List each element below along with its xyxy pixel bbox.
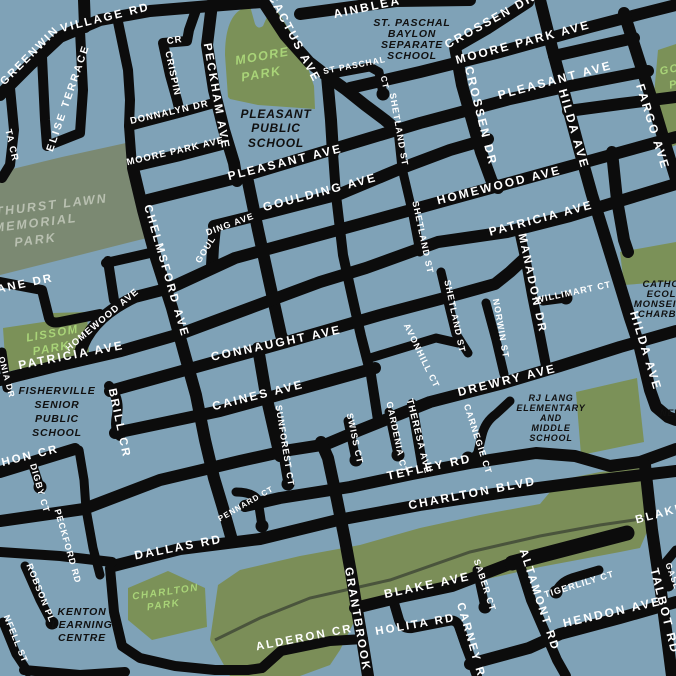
svg-text:CHARBON: CHARBON bbox=[638, 309, 676, 320]
svg-text:CENTRE: CENTRE bbox=[58, 632, 106, 644]
svg-text:SCHOOL: SCHOOL bbox=[32, 427, 82, 439]
svg-text:SCHOOL: SCHOOL bbox=[529, 433, 572, 443]
svg-text:PUBLIC: PUBLIC bbox=[35, 413, 79, 425]
svg-text:NEWTONB: NEWTONB bbox=[660, 408, 676, 418]
svg-text:LEARNING: LEARNING bbox=[51, 619, 112, 631]
svg-text:MIDDLE: MIDDLE bbox=[531, 423, 570, 433]
svg-text:CR: CR bbox=[166, 34, 183, 47]
svg-text:PLEASANT: PLEASANT bbox=[240, 107, 312, 121]
svg-text:SENIOR: SENIOR bbox=[34, 399, 79, 411]
svg-text:ELEMENTARY: ELEMENTARY bbox=[516, 403, 585, 413]
svg-text:KENTON: KENTON bbox=[58, 606, 107, 618]
svg-text:FISHERVILLE: FISHERVILLE bbox=[18, 385, 95, 397]
svg-text:SCHOOL: SCHOOL bbox=[248, 136, 304, 150]
svg-text:SCHOOL: SCHOOL bbox=[387, 50, 437, 62]
svg-text:RJ LANG: RJ LANG bbox=[528, 393, 573, 403]
svg-text:AND: AND bbox=[539, 413, 562, 423]
svg-text:PUBLIC: PUBLIC bbox=[251, 121, 300, 135]
